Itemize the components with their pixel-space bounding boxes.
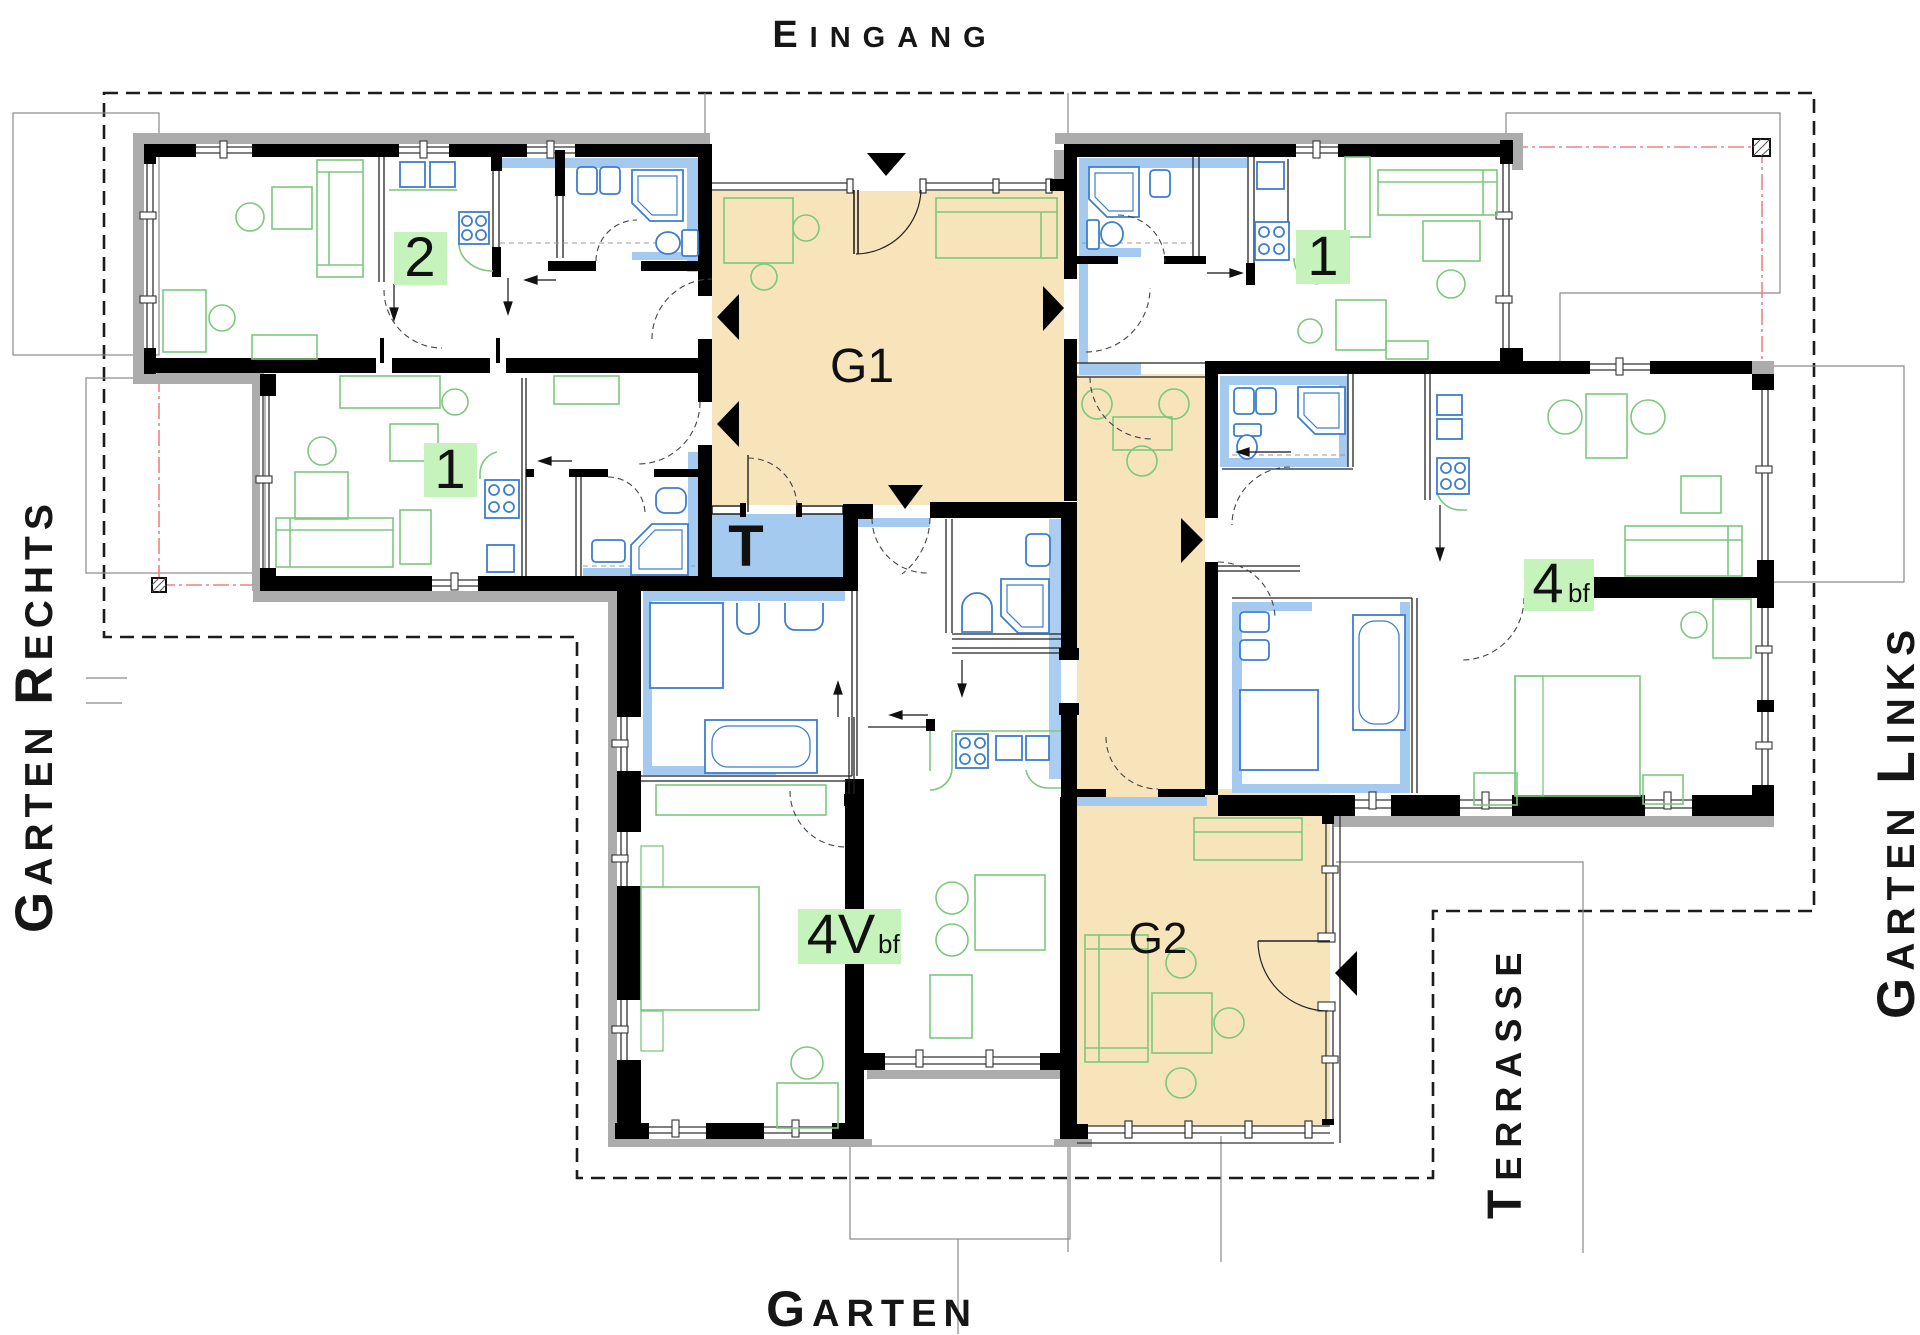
svg-text:bf: bf: [1568, 578, 1590, 608]
svg-text:T: T: [728, 514, 763, 579]
svg-text:G1: G1: [830, 340, 894, 393]
svg-text:4: 4: [1532, 551, 1563, 614]
svg-text:2: 2: [404, 225, 435, 288]
svg-text:1: 1: [1307, 224, 1338, 287]
svg-text:1: 1: [434, 437, 465, 500]
svg-text:G2: G2: [1129, 914, 1188, 963]
svg-text:4V: 4V: [807, 902, 876, 965]
svg-text:bf: bf: [878, 929, 900, 959]
